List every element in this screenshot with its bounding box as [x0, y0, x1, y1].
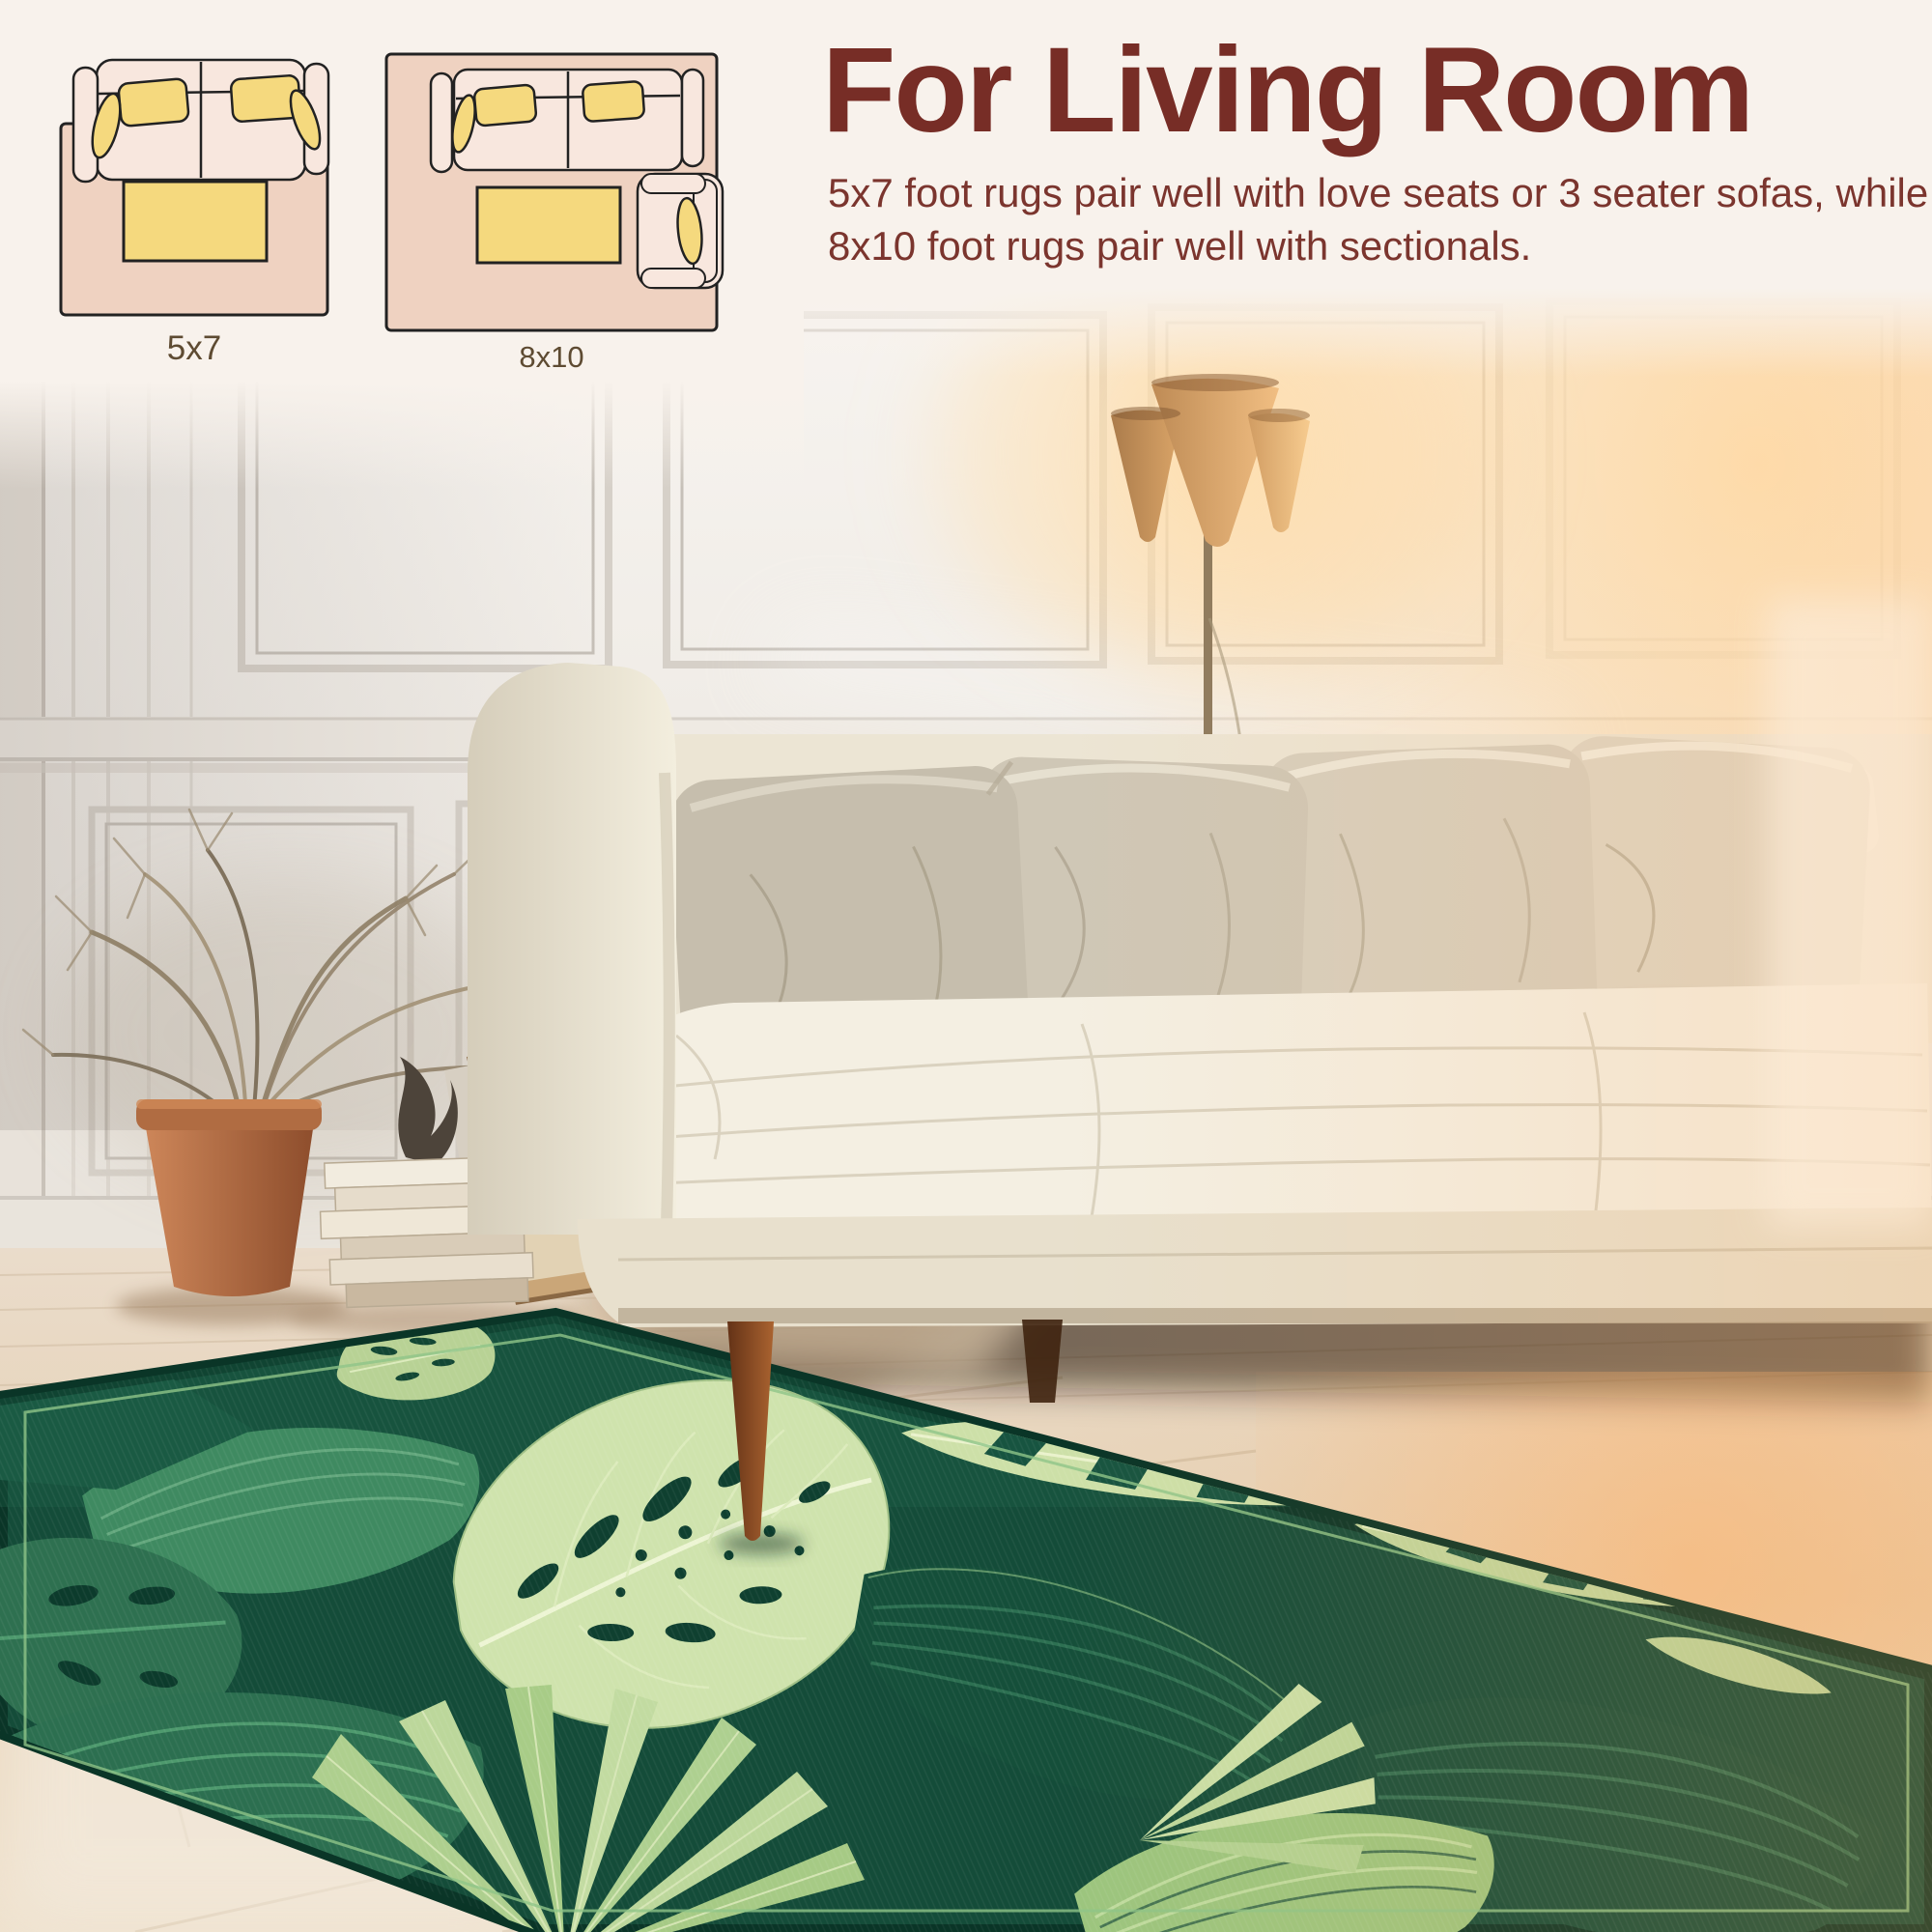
loveseat-top-view: [73, 60, 328, 182]
size-label-5x7: 5x7: [61, 329, 327, 368]
size-diagram-5x7: [61, 60, 328, 315]
band-fade: [804, 288, 1932, 377]
page-title: For Living Room: [822, 21, 1923, 159]
sofa-top-view: [431, 70, 703, 172]
sofa-armrest: [468, 663, 676, 1235]
size-diagram-8x10: [386, 54, 723, 330]
armchair-top-view: [638, 174, 723, 288]
size-label-8x10: 8x10: [386, 340, 717, 375]
product-infographic: 5x7 8x10 For Living Room 5x7 foot rugs p…: [0, 0, 1932, 1932]
description-text: 5x7 foot rugs pair well with love seats …: [828, 166, 1932, 273]
rug-size-diagrams: [0, 0, 792, 464]
coffee-table: [477, 187, 620, 263]
coffee-table: [124, 182, 267, 261]
